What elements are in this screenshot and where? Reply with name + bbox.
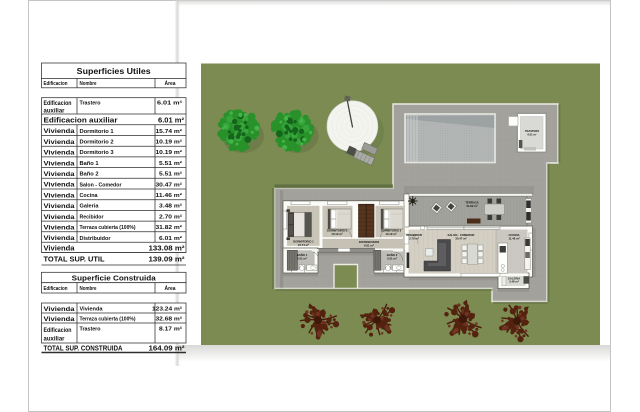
- svg-text:31.82 m²: 31.82 m²: [466, 204, 477, 208]
- svg-text:TOTAL SUP. CONSTRUIDA: TOTAL SUP. CONSTRUIDA: [44, 344, 123, 353]
- svg-text:Vivienda: Vivienda: [44, 139, 76, 146]
- svg-text:6.01 m²: 6.01 m²: [157, 100, 182, 107]
- svg-text:Terraza cubierta (100%): Terraza cubierta (100%): [80, 316, 136, 322]
- svg-text:10.19 m²: 10.19 m²: [156, 139, 183, 146]
- svg-text:Galeria: Galeria: [80, 204, 100, 210]
- svg-text:Terraza cubierta (100%): Terraza cubierta (100%): [80, 225, 136, 231]
- svg-text:Área: Área: [165, 285, 176, 292]
- svg-text:6.01 m²: 6.01 m²: [159, 235, 182, 242]
- svg-text:Baño 2: Baño 2: [80, 172, 99, 178]
- svg-text:Vivienda: Vivienda: [44, 225, 76, 232]
- svg-text:Edificacion: Edificacion: [44, 286, 68, 292]
- svg-text:Nombre: Nombre: [80, 286, 97, 292]
- svg-text:Edificacion: Edificacion: [44, 327, 72, 334]
- svg-text:15.74 m²: 15.74 m²: [298, 243, 309, 247]
- svg-text:Superficies Utiles: Superficies Utiles: [77, 67, 152, 76]
- svg-text:Dormitorio 1: Dormitorio 1: [80, 129, 114, 135]
- svg-text:TRASTERO: TRASTERO: [525, 129, 539, 133]
- svg-text:Vivienda: Vivienda: [44, 235, 76, 242]
- svg-text:auxiliar: auxiliar: [44, 336, 65, 343]
- svg-text:3.48 m²: 3.48 m²: [159, 203, 182, 210]
- svg-text:2.70 m²: 2.70 m²: [409, 237, 419, 241]
- svg-text:Baño 1: Baño 1: [80, 161, 99, 167]
- svg-text:Trastero: Trastero: [80, 326, 102, 332]
- svg-text:10.19 m²: 10.19 m²: [385, 232, 396, 236]
- svg-text:139.09 m²: 139.09 m²: [149, 255, 186, 264]
- svg-text:Cocina: Cocina: [80, 193, 99, 199]
- svg-text:Edificacion: Edificacion: [44, 81, 68, 87]
- svg-text:6.01 m²: 6.01 m²: [158, 118, 185, 125]
- svg-text:Vivienda: Vivienda: [44, 128, 76, 135]
- svg-text:Dormitorio 3: Dormitorio 3: [80, 150, 114, 156]
- svg-text:31.82 m²: 31.82 m²: [156, 224, 183, 231]
- svg-text:8.17 m²: 8.17 m²: [159, 325, 182, 332]
- svg-text:15.74 m²: 15.74 m²: [156, 128, 183, 135]
- svg-text:Edificacion: Edificacion: [44, 100, 72, 107]
- svg-text:10.19 m²: 10.19 m²: [156, 149, 183, 156]
- svg-text:Vivienda: Vivienda: [44, 203, 76, 210]
- svg-text:5.51 m²: 5.51 m²: [387, 257, 397, 261]
- svg-text:30.47 m²: 30.47 m²: [455, 237, 466, 241]
- svg-text:Vivienda: Vivienda: [44, 192, 76, 199]
- svg-text:Vivienda: Vivienda: [44, 150, 76, 157]
- svg-text:5.51 m²: 5.51 m²: [159, 160, 182, 167]
- svg-text:5.51 m²: 5.51 m²: [297, 257, 307, 261]
- svg-text:Vivienda: Vivienda: [44, 182, 76, 189]
- svg-text:10.19 m²: 10.19 m²: [331, 232, 342, 236]
- svg-text:Vivienda: Vivienda: [44, 171, 76, 178]
- svg-text:Recibidor: Recibidor: [80, 214, 105, 220]
- svg-text:30.47 m²: 30.47 m²: [156, 181, 183, 188]
- svg-text:Salon - Comedor: Salon - Comedor: [80, 182, 123, 188]
- svg-text:32.68 m²: 32.68 m²: [156, 315, 183, 322]
- svg-text:11.46 m²: 11.46 m²: [156, 192, 183, 199]
- svg-text:3.48 m²: 3.48 m²: [509, 280, 519, 284]
- svg-text:Superficie Construida: Superficie Construida: [72, 273, 157, 282]
- svg-text:TOTAL SUP. UTIL: TOTAL SUP. UTIL: [44, 255, 106, 264]
- svg-text:Distribuidor: Distribuidor: [80, 236, 112, 242]
- svg-text:Área: Área: [165, 80, 176, 87]
- svg-text:Vivienda: Vivienda: [80, 306, 104, 312]
- svg-text:5.51 m²: 5.51 m²: [159, 171, 182, 178]
- svg-text:123.24 m²: 123.24 m²: [152, 305, 182, 312]
- svg-text:Vivienda: Vivienda: [44, 160, 76, 167]
- svg-text:6.01 m²: 6.01 m²: [364, 243, 374, 247]
- svg-text:6.01 m²: 6.01 m²: [528, 132, 537, 136]
- svg-text:11.46 m²: 11.46 m²: [508, 237, 519, 241]
- svg-text:2.70 m²: 2.70 m²: [159, 213, 182, 220]
- svg-text:Vivienda: Vivienda: [44, 316, 76, 323]
- svg-text:auxiliar: auxiliar: [44, 108, 65, 115]
- svg-text:133.08 m²: 133.08 m²: [149, 245, 186, 252]
- svg-text:Dormitorio 2: Dormitorio 2: [80, 140, 114, 146]
- svg-text:164.09 m²: 164.09 m²: [149, 344, 186, 353]
- svg-text:Vivienda: Vivienda: [44, 245, 75, 252]
- svg-text:Trastero: Trastero: [80, 101, 102, 107]
- svg-text:Edificacion auxiliar: Edificacion auxiliar: [44, 118, 118, 125]
- svg-text:Vivienda: Vivienda: [44, 214, 76, 221]
- svg-text:Vivienda: Vivienda: [44, 306, 76, 313]
- svg-text:Nombre: Nombre: [80, 81, 97, 87]
